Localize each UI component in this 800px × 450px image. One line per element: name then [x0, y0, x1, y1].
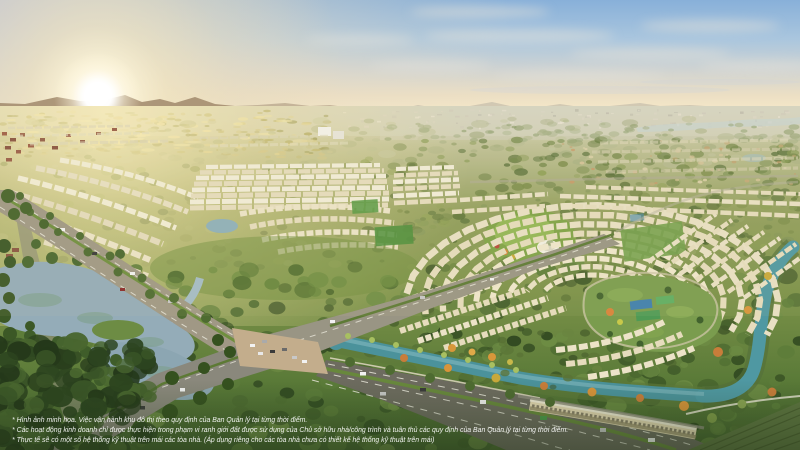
svg-text:* Các hoạt động kinh doanh chỉ: * Các hoạt động kinh doanh chỉ được thực… [12, 426, 568, 434]
svg-text:* Thực tế sẽ có một số hệ thốn: * Thực tế sẽ có một số hệ thống kỹ thuật… [12, 435, 434, 444]
svg-text:* Hình ảnh minh họa. Việc vận: * Hình ảnh minh họa. Việc vận hành khu đ… [12, 416, 307, 424]
